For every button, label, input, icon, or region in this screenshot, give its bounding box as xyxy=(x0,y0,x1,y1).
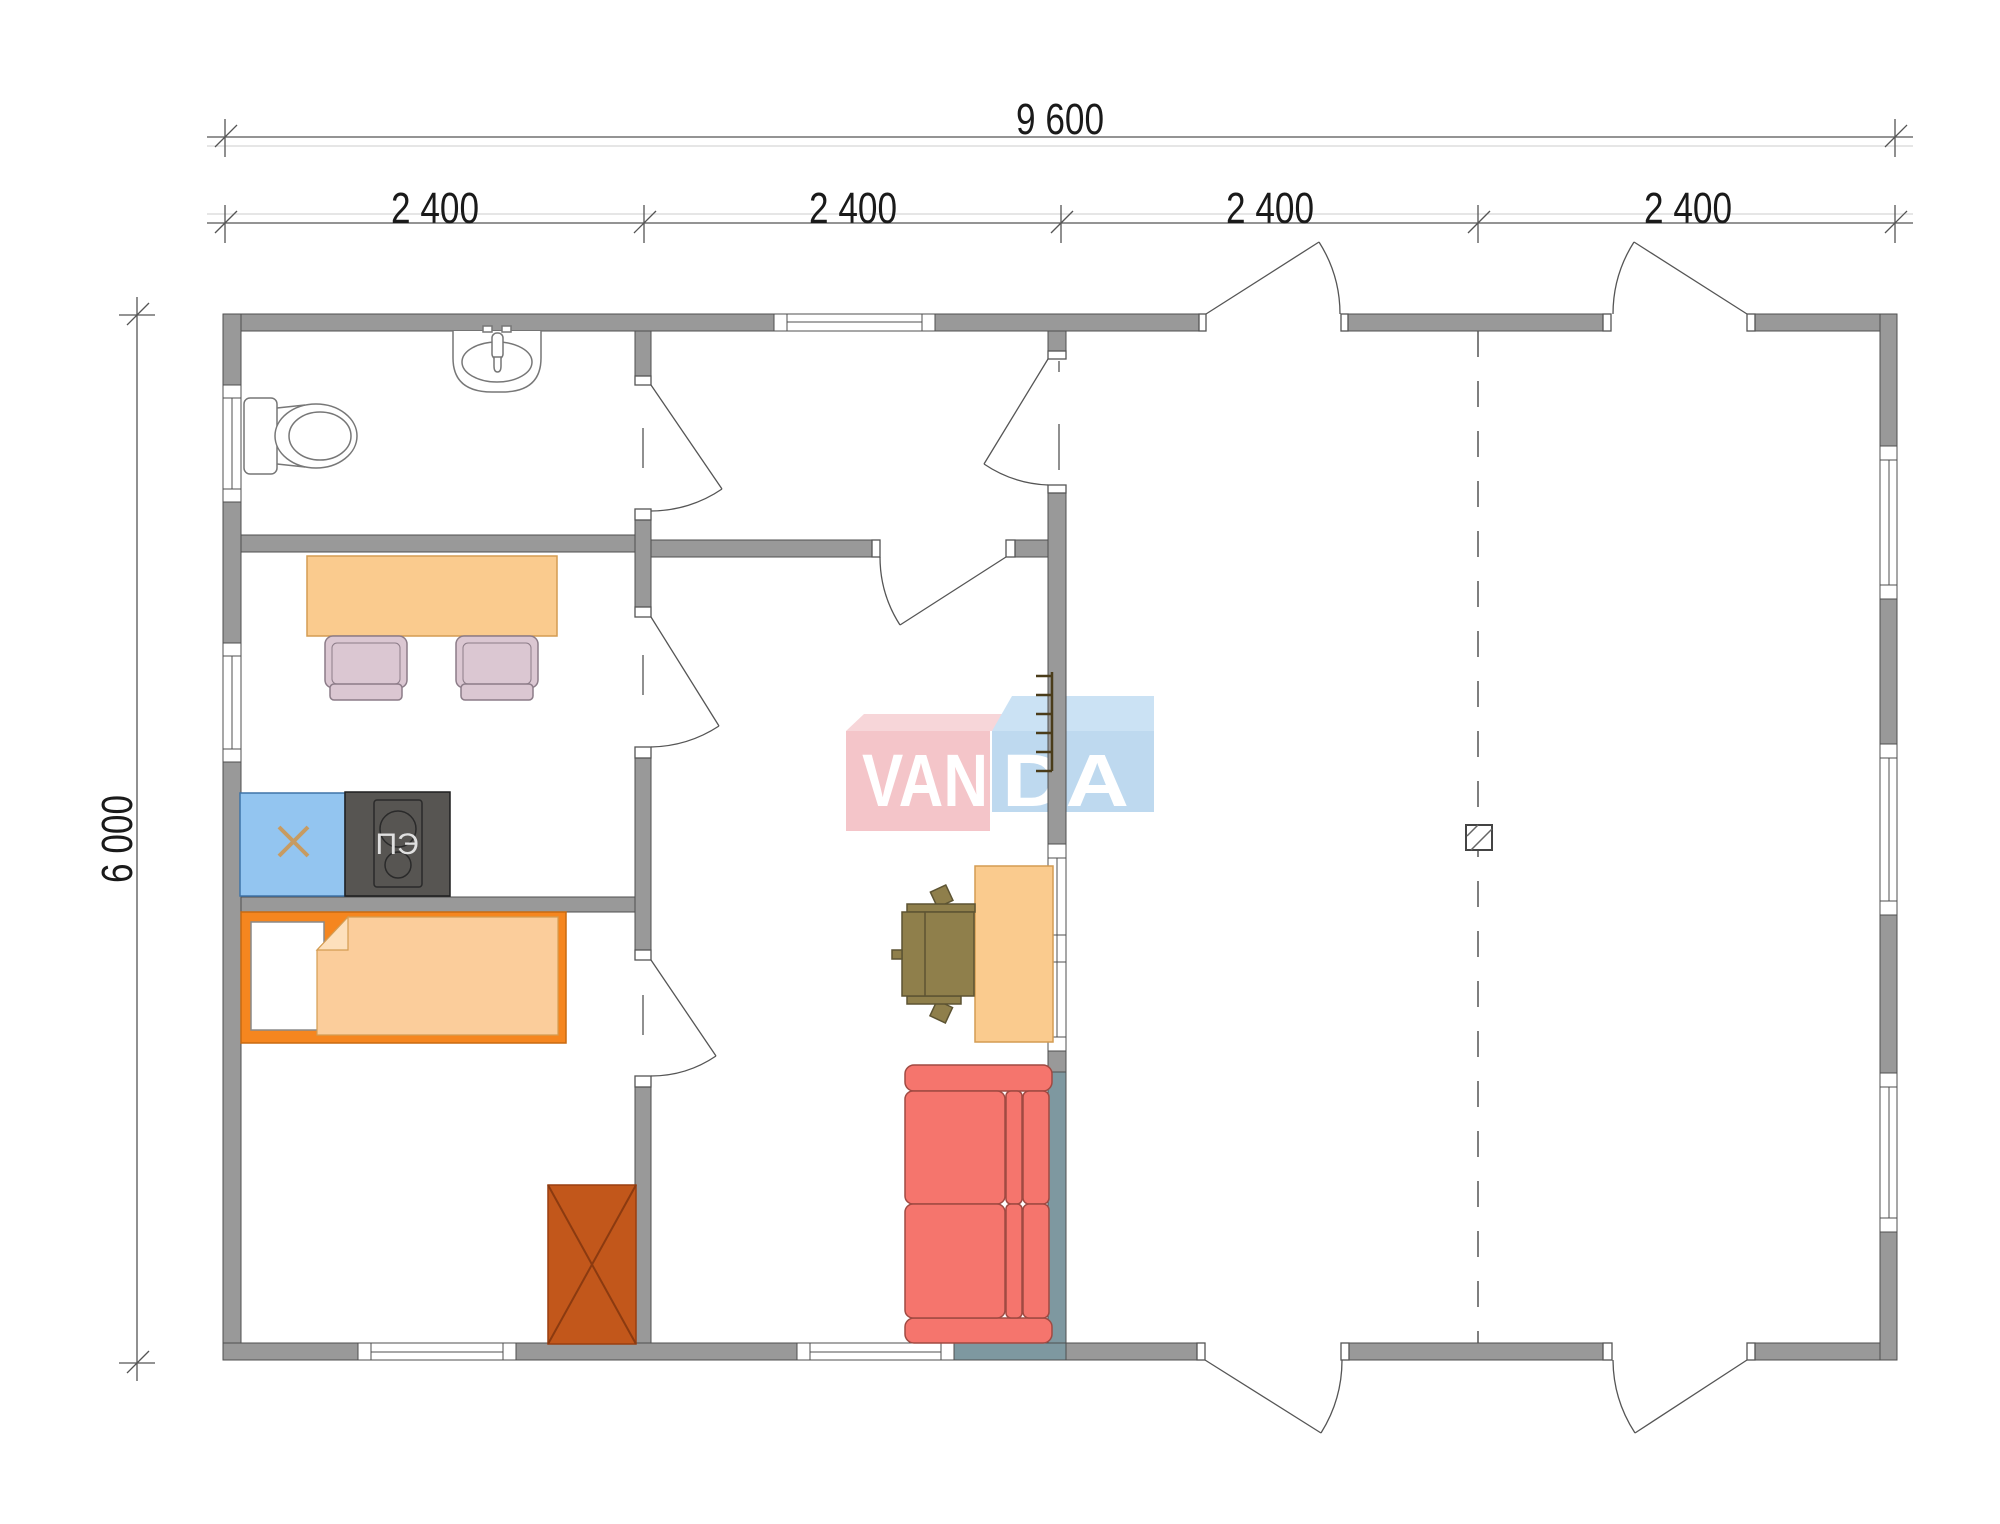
svg-text:ПЭ: ПЭ xyxy=(375,828,418,861)
svg-text:2 400: 2 400 xyxy=(809,184,897,233)
svg-text:9 600: 9 600 xyxy=(1016,95,1104,144)
svg-text:2 400: 2 400 xyxy=(1644,184,1732,233)
svg-text:6 000: 6 000 xyxy=(93,795,142,883)
svg-text:2 400: 2 400 xyxy=(1226,184,1314,233)
svg-text:VAN: VAN xyxy=(862,739,988,822)
svg-text:2 400: 2 400 xyxy=(391,184,479,233)
